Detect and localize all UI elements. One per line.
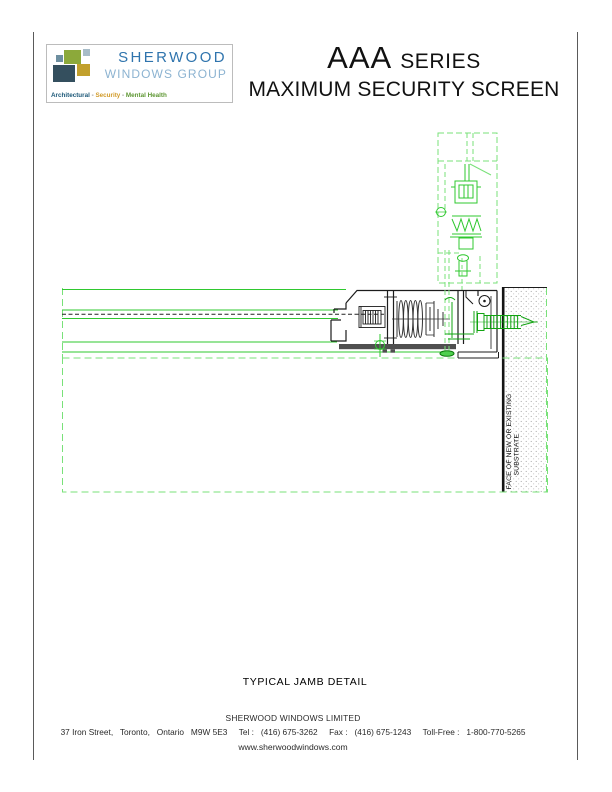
drawing-caption: TYPICAL JAMB DETAIL bbox=[33, 676, 577, 688]
footer-company: SHERWOOD WINDOWS LIMITED bbox=[33, 712, 553, 725]
head-section-reference bbox=[435, 133, 497, 291]
jamb-profile bbox=[331, 291, 499, 359]
screen-panel-lines bbox=[62, 288, 548, 492]
footer-website: www.sherwoodwindows.com bbox=[33, 740, 553, 755]
document-page: SHERWOOD WINDOWS GROUP Architectural - S… bbox=[0, 0, 612, 792]
footer-address: 37 Iron Street, Toronto, Ontario M9W 5E3… bbox=[33, 725, 553, 740]
page-footer: SHERWOOD WINDOWS LIMITED 37 Iron Street,… bbox=[33, 712, 553, 755]
jamb-detail-drawing: FACE OF NEW OR EXISTING SUBSTRATE bbox=[0, 0, 612, 792]
